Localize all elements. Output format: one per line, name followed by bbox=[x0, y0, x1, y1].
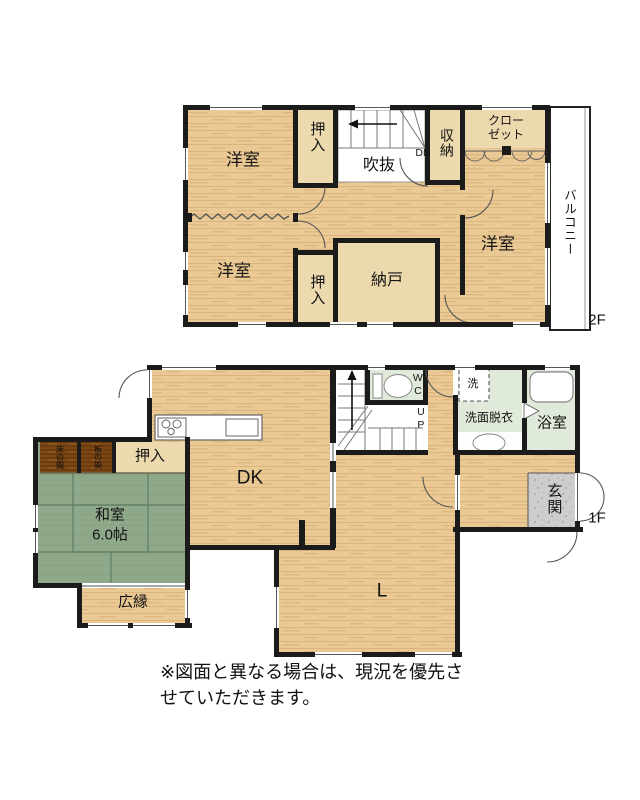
room-label-2f-yoshitsu-sw: 洋室 bbox=[217, 261, 251, 280]
floor-2f-label: 2F bbox=[588, 313, 606, 330]
room-1f-living bbox=[279, 545, 457, 657]
room-label-2f-closet-line2: ゼット bbox=[488, 128, 524, 141]
bathtub-icon bbox=[530, 372, 573, 402]
room-label-2f-fukinuke: 吹抜 bbox=[363, 157, 395, 175]
kitchen-counter bbox=[155, 415, 262, 440]
sliding-doors-dk-l bbox=[330, 443, 336, 508]
room-label-1f-hiroen: 広縁 bbox=[118, 595, 148, 612]
room-label-1f-itanoma: 板の間 bbox=[93, 445, 102, 469]
room-label-2f-balcony: バルコニー bbox=[562, 188, 576, 256]
room-label-2f-oshiire-bottom: 押入 bbox=[308, 274, 325, 306]
room-label-1f-dk: DK bbox=[237, 467, 263, 488]
room-label-1f-wc: WC bbox=[411, 372, 423, 398]
floor-2f-plan bbox=[183, 105, 590, 330]
room-label-2f-yoshitsu-nw: 洋室 bbox=[226, 150, 260, 169]
room-label-2f-yoshitsu-e: 洋室 bbox=[481, 234, 515, 253]
floorplan-page: { "floor2": { "floor_label": "2F", "yosh… bbox=[0, 0, 640, 800]
room-label-1f-genkan: 玄関 bbox=[545, 483, 562, 515]
floor-1f-label: 1F bbox=[588, 511, 606, 528]
room-label-1f-washitsu-size: 6.0帖 bbox=[92, 528, 128, 545]
room-label-1f-yokushitsu: 浴室 bbox=[537, 416, 567, 433]
room-label-1f-senmendatsui: 洗面脱衣 bbox=[465, 411, 513, 424]
room-label-2f-closet-line1: クロー bbox=[488, 114, 524, 127]
room-label-2f-nando: 納戸 bbox=[371, 272, 403, 290]
toilet-bowl bbox=[384, 375, 412, 398]
room-label-1f-living: L bbox=[377, 580, 388, 601]
room-label-1f-washitsu: 和室 bbox=[95, 508, 125, 525]
room-label-1f-tokonoma: 床の間 bbox=[55, 445, 64, 469]
disclaimer-caption: ※図面と異なる場合は、現況を優先させていただきます。 bbox=[160, 658, 480, 710]
room-label-2f-shuno: 収納 bbox=[438, 128, 454, 158]
washer-label: 洗 bbox=[468, 378, 479, 390]
stairs-1f-up-label: UP bbox=[414, 406, 426, 432]
room-label-1f-oshiire: 押入 bbox=[135, 449, 165, 466]
room-label-2f-oshiire-top: 押入 bbox=[308, 121, 325, 153]
stairs-2f-dn-label: DN bbox=[415, 148, 430, 160]
toilet-tank bbox=[373, 374, 382, 398]
sink-icon bbox=[473, 434, 505, 452]
